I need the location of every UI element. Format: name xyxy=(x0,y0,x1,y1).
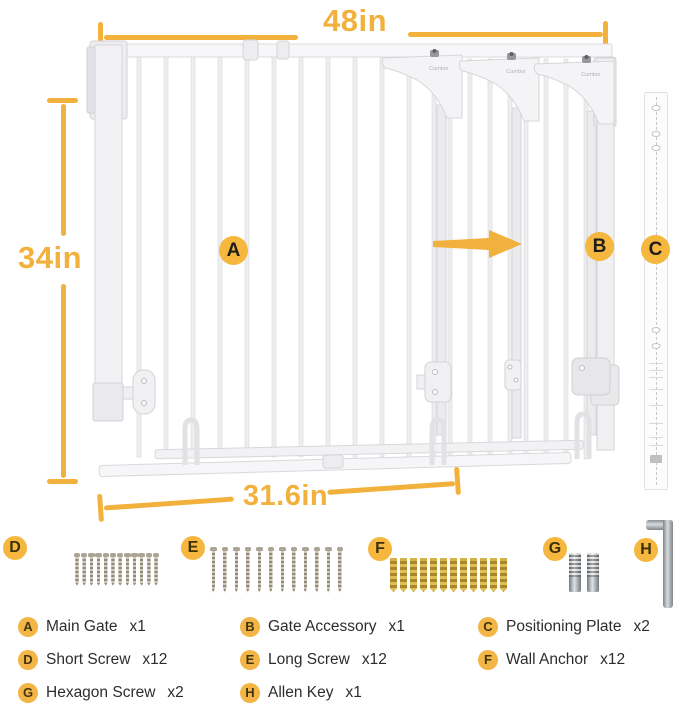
part-qty: x2 xyxy=(633,618,649,636)
product-diagram: 48in 34in 31.6in Cumbor xyxy=(0,0,679,705)
plate-print xyxy=(649,363,663,364)
short-screw-icon xyxy=(96,553,102,586)
part-item-short-screw: D Short Screw x12 xyxy=(18,649,240,670)
part-badge: F xyxy=(478,650,498,670)
part-name: Hexagon Screw xyxy=(46,684,155,702)
part-qty: x2 xyxy=(167,684,183,702)
badge-long-screw: E xyxy=(181,536,205,560)
right-bracket xyxy=(572,358,610,395)
wall-anchor-icon xyxy=(480,558,487,592)
part-badge: C xyxy=(478,617,498,637)
left-post xyxy=(95,45,122,420)
long-screw-icon xyxy=(209,547,218,593)
gate-top-rail xyxy=(120,44,612,57)
plate-print xyxy=(649,423,663,424)
marker-positioning-plate: C xyxy=(641,235,670,264)
plate-hole xyxy=(652,105,661,111)
long-screw-icon xyxy=(324,547,333,593)
short-screw-icon xyxy=(153,553,159,586)
long-screw-icon xyxy=(232,547,241,593)
plate-logo-print xyxy=(650,455,662,463)
part-name: Allen Key xyxy=(268,684,333,702)
height-dimension-label: 34in xyxy=(4,240,96,276)
hinge-screw xyxy=(142,401,147,406)
wall-anchor-icon xyxy=(490,558,497,592)
long-screw-icon xyxy=(267,547,276,593)
plate-print xyxy=(649,377,663,378)
short-screw-icon xyxy=(139,553,145,586)
part-item-allen-key: H Allen Key x1 xyxy=(240,682,478,703)
part-item-hexagon-screw: G Hexagon Screw x2 xyxy=(18,682,240,703)
part-qty: x12 xyxy=(142,651,167,669)
hexagon-screw-icon xyxy=(569,553,581,592)
long-screw-icon xyxy=(244,547,253,593)
part-name: Long Screw xyxy=(268,651,350,669)
part-item-long-screw: E Long Screw x12 xyxy=(240,649,478,670)
short-screws-group xyxy=(74,553,160,586)
part-name: Main Gate xyxy=(46,618,118,636)
part-name: Short Screw xyxy=(46,651,130,669)
wall-anchor-icon xyxy=(390,558,397,592)
plate-hole xyxy=(652,343,661,349)
badge-short-screw: D xyxy=(3,536,27,560)
gate-width-tick-left xyxy=(97,494,104,522)
rail-clamp xyxy=(243,40,258,60)
plate-print xyxy=(649,370,663,371)
short-screw-icon xyxy=(124,553,130,586)
part-qty: x12 xyxy=(362,651,387,669)
part-badge: E xyxy=(240,650,260,670)
part-qty: x12 xyxy=(600,651,625,669)
part-badge: H xyxy=(240,683,260,703)
height-dimension-tick-top xyxy=(47,98,78,103)
badge-allen-key: H xyxy=(634,538,658,562)
short-screw-icon xyxy=(110,553,116,586)
marker-gate-accessory: B xyxy=(585,232,614,261)
short-screw-icon xyxy=(74,553,80,586)
wall-anchor-icon xyxy=(500,558,507,592)
height-dimension-line-top xyxy=(61,104,66,236)
short-screw-icon xyxy=(132,553,138,586)
part-name: Wall Anchor xyxy=(506,651,588,669)
positioning-plate xyxy=(644,92,668,490)
wall-anchor-icon xyxy=(400,558,407,592)
part-item-gate-accessory: B Gate Accessory x1 xyxy=(240,616,478,637)
plate-print xyxy=(649,389,663,390)
part-qty: x1 xyxy=(345,684,361,702)
part-qty: x1 xyxy=(130,618,146,636)
long-screw-icon xyxy=(221,547,230,593)
plate-centerline xyxy=(656,97,657,485)
long-screws-group xyxy=(209,547,347,593)
hinge-bracket xyxy=(133,370,155,414)
short-screw-icon xyxy=(146,553,152,586)
left-post-bottom-block xyxy=(93,383,123,421)
plate-print xyxy=(649,445,663,446)
wall-anchors-group xyxy=(390,558,510,592)
gate-illustration: Cumbor xyxy=(85,35,620,485)
part-badge: B xyxy=(240,617,260,637)
bracket-screw xyxy=(508,365,512,369)
long-screw-icon xyxy=(255,547,264,593)
plate-hole xyxy=(652,131,661,137)
plate-hole xyxy=(652,327,661,333)
long-screw-icon xyxy=(290,547,299,593)
part-qty: x1 xyxy=(389,618,405,636)
hexagon-screws-group xyxy=(569,553,605,592)
short-screw-icon xyxy=(81,553,87,586)
wall-anchor-icon xyxy=(440,558,447,592)
badge-wall-anchor: F xyxy=(368,537,392,561)
plate-hole xyxy=(652,145,661,151)
wall-anchor-icon xyxy=(410,558,417,592)
part-badge: G xyxy=(18,683,38,703)
short-screw-icon xyxy=(117,553,123,586)
part-name: Positioning Plate xyxy=(506,618,621,636)
plate-print xyxy=(649,405,663,406)
width-dimension-label: 48in xyxy=(300,3,410,39)
rail-clamp xyxy=(277,41,289,59)
long-screw-icon xyxy=(301,547,310,593)
short-screw-icon xyxy=(88,553,94,586)
wall-anchor-icon xyxy=(420,558,427,592)
part-badge: D xyxy=(18,650,38,670)
wall-anchor-icon xyxy=(430,558,437,592)
height-dimension-tick-bottom xyxy=(47,479,78,484)
plate-print xyxy=(649,437,663,438)
part-item-positioning-plate: C Positioning Plate x2 xyxy=(478,616,673,637)
wall-anchor-icon xyxy=(450,558,457,592)
hexagon-screw-icon xyxy=(587,553,599,592)
gate-width-line-left xyxy=(104,497,234,511)
wall-anchor-icon xyxy=(470,558,477,592)
wall-anchor-icon xyxy=(460,558,467,592)
allen-key-icon xyxy=(663,520,673,608)
part-name: Gate Accessory xyxy=(268,618,377,636)
bracket-screw xyxy=(433,390,438,395)
part-item-wall-anchor: F Wall Anchor x12 xyxy=(478,649,673,670)
latch-plate xyxy=(505,360,521,390)
badge-hexagon-screw: G xyxy=(543,537,567,561)
bracket-screw xyxy=(514,378,518,382)
marker-main-gate: A xyxy=(219,236,248,265)
bracket-screw xyxy=(433,370,438,375)
hinge-screw xyxy=(142,379,147,384)
bracket-screw xyxy=(580,366,585,371)
parts-list: A Main Gate x1 B Gate Accessory x1 C Pos… xyxy=(18,616,673,703)
short-screw-icon xyxy=(103,553,109,586)
height-dimension-line-bottom xyxy=(61,284,66,478)
base-rail-clamp xyxy=(323,455,343,469)
long-screw-icon xyxy=(278,547,287,593)
long-screw-icon xyxy=(313,547,322,593)
part-badge: A xyxy=(18,617,38,637)
part-item-main-gate: A Main Gate x1 xyxy=(18,616,240,637)
long-screw-icon xyxy=(336,547,345,593)
mid-bracket xyxy=(425,362,451,402)
